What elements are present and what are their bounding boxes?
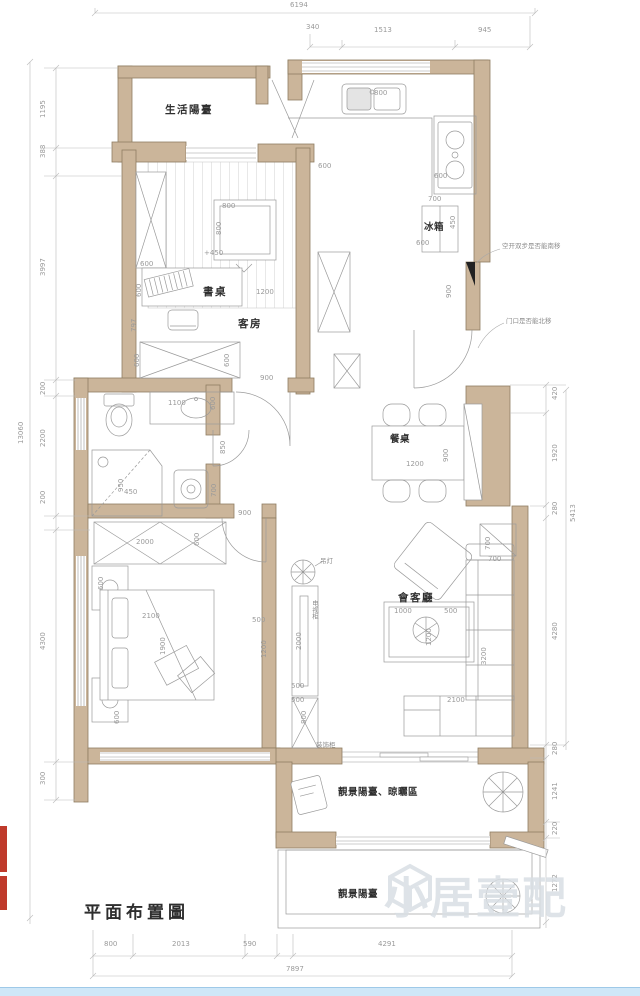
dimension-label: 600 xyxy=(416,240,429,247)
dimension-label: 1920 xyxy=(552,444,559,462)
dimension-label: 500 xyxy=(252,617,265,624)
toilet xyxy=(106,404,132,436)
dimension-label: 装饰柜 xyxy=(316,742,336,749)
dimension-label: 1241 xyxy=(552,782,559,800)
wall-segment xyxy=(276,832,336,848)
dimension-label: 700 xyxy=(211,484,218,497)
dimension-label: 600 xyxy=(194,533,201,546)
chair xyxy=(168,310,198,330)
dimension-label: 1900 xyxy=(160,637,167,655)
living-room-furniture xyxy=(291,520,516,748)
dimension-label: 700 xyxy=(488,556,501,563)
dimension-label: 700 xyxy=(485,537,492,550)
dimension-label: 300 xyxy=(40,772,47,785)
room-label: 書桌 xyxy=(203,284,227,299)
room-label: 靚景陽臺、晾曬區 xyxy=(338,784,418,798)
wall-segment xyxy=(474,60,490,262)
dimension-label: 3997 xyxy=(40,258,47,276)
dimension-label: 电视柜 xyxy=(311,600,318,620)
wall-segment xyxy=(276,762,292,838)
dimension-label: 1100 xyxy=(168,400,186,407)
dining-furniture xyxy=(372,404,482,502)
dimension-label: 5413 xyxy=(570,504,577,522)
dimension-label: 280 xyxy=(552,742,559,755)
dimension-label: 1195 xyxy=(40,100,47,118)
shaft-columns xyxy=(318,252,475,388)
page-title: 平面布置圖 xyxy=(84,898,189,923)
dimension-label: 600 xyxy=(136,284,143,297)
dimension-label: 900 xyxy=(443,449,450,462)
wall-segment xyxy=(528,762,544,838)
dimension-label: 500 xyxy=(291,683,304,690)
dimension-label: 1272 xyxy=(552,874,559,892)
bottom-bar xyxy=(0,987,640,996)
dimension-label: 500 xyxy=(291,697,304,704)
dimension-label: 2013 xyxy=(172,941,190,948)
dimension-label: 4280 xyxy=(552,622,559,640)
room-label: 生活陽臺 xyxy=(165,102,213,117)
dimension-label: +450 xyxy=(204,250,223,257)
dimension-label: 945 xyxy=(478,27,491,34)
red-seal xyxy=(0,826,7,872)
red-seal xyxy=(0,876,7,910)
dimension-label: 500 xyxy=(444,608,457,615)
plant xyxy=(486,879,520,913)
dimension-label: 800 xyxy=(216,222,223,235)
dimension-label: 800 xyxy=(374,90,387,97)
dimension-label: 600 xyxy=(140,261,153,268)
dimension-label: 1000 xyxy=(394,608,412,615)
dimension-label: 340 xyxy=(306,24,319,31)
dimension-label: 900 xyxy=(446,285,453,298)
dimension-label: 6194 xyxy=(290,2,308,9)
dimension-label: 13060 xyxy=(18,422,25,444)
dimension-label: 700 xyxy=(428,196,441,203)
wardrobe xyxy=(94,522,226,564)
dimension-label: 388 xyxy=(40,145,47,158)
wall-segment xyxy=(478,748,544,764)
chair xyxy=(383,480,410,502)
dimension-label: 门口是否能北移 xyxy=(506,318,552,325)
dimension-label: 600 xyxy=(134,354,141,367)
dimension-label: 450 xyxy=(124,489,137,496)
dimension-label: 600 xyxy=(98,577,105,590)
dimension-label: 4291 xyxy=(378,941,396,948)
dimension-label: 900 xyxy=(260,375,273,382)
room-label: 靚景陽臺 xyxy=(338,886,378,900)
chair xyxy=(419,480,446,502)
dimension-label: 600 xyxy=(210,397,217,410)
guest-room-door xyxy=(236,392,290,446)
dimension-label: 220 xyxy=(552,822,559,835)
annotation-leaders xyxy=(477,249,504,348)
dimension-label: 900 xyxy=(238,510,251,517)
dimension-label: 4300 xyxy=(40,632,47,650)
chair xyxy=(419,404,446,426)
floor-plan-page: 61943401513945800600600700600800+4506001… xyxy=(0,0,640,996)
wall-segment xyxy=(276,748,342,764)
wall-segment xyxy=(118,66,270,78)
dimension-label: 600 xyxy=(318,163,331,170)
dimension-label: 2200 xyxy=(40,429,47,447)
wall-segment xyxy=(262,504,276,518)
dimension-label: 950 xyxy=(118,479,125,492)
dimension-label: 600 xyxy=(434,173,447,180)
dimension-label: 2000 xyxy=(296,632,303,650)
wall-segment xyxy=(256,66,268,104)
dimension-label: 200 xyxy=(40,491,47,504)
bedroom-furniture xyxy=(92,522,226,722)
dimension-label: 2000 xyxy=(136,539,154,546)
dimension-label: 590 xyxy=(243,941,256,948)
dimension-label: 1513 xyxy=(374,27,392,34)
room-label: 客房 xyxy=(238,316,262,331)
dimension-label: 2100 xyxy=(447,697,465,704)
wall-segment xyxy=(288,378,314,392)
bed xyxy=(100,590,214,700)
dining-table xyxy=(372,426,464,480)
wall-segment xyxy=(296,148,310,394)
dimension-label: 1200 xyxy=(261,640,268,658)
plant xyxy=(483,772,523,812)
stove xyxy=(434,116,476,194)
dimension-label: 600 xyxy=(114,711,121,724)
wall-segment xyxy=(262,518,276,748)
wall-segment xyxy=(512,506,528,762)
washing-machine xyxy=(290,775,327,815)
dimension-label: 吊灯 xyxy=(320,558,333,565)
room-label: 會客廳 xyxy=(398,590,434,605)
dimension-label: 200 xyxy=(40,382,47,395)
room-label: 冰箱 xyxy=(424,219,444,233)
dimension-label: 3200 xyxy=(481,647,488,665)
dimension-label: 1200 xyxy=(406,461,424,468)
dimension-label: 空开双步是否能南移 xyxy=(502,243,561,250)
dimension-label: 1200 xyxy=(256,289,274,296)
chair xyxy=(383,404,410,426)
wall-segment xyxy=(206,385,220,435)
dimension-label: 7897 xyxy=(286,966,304,973)
dimension-label: 850 xyxy=(220,441,227,454)
washer xyxy=(174,470,208,508)
lower-balcony-outline xyxy=(278,850,540,928)
dimension-label: 800 xyxy=(222,203,235,210)
entry-door xyxy=(414,330,472,388)
dimension-label: 800 xyxy=(104,941,117,948)
plan-linework xyxy=(0,0,640,996)
dimension-label: 2100 xyxy=(142,613,160,620)
bedroom-door xyxy=(222,518,266,562)
dimension-label: 800 xyxy=(301,711,308,724)
dimension-label: 280 xyxy=(552,502,559,515)
dimension-label: 797 xyxy=(131,319,138,332)
vanity xyxy=(150,392,234,424)
dimension-label: 420 xyxy=(552,387,559,400)
dimension-label: 450 xyxy=(450,216,457,229)
room-label: 餐桌 xyxy=(390,431,410,445)
dimension-label: 600 xyxy=(224,354,231,367)
dimension-label: 1200 xyxy=(426,628,433,646)
